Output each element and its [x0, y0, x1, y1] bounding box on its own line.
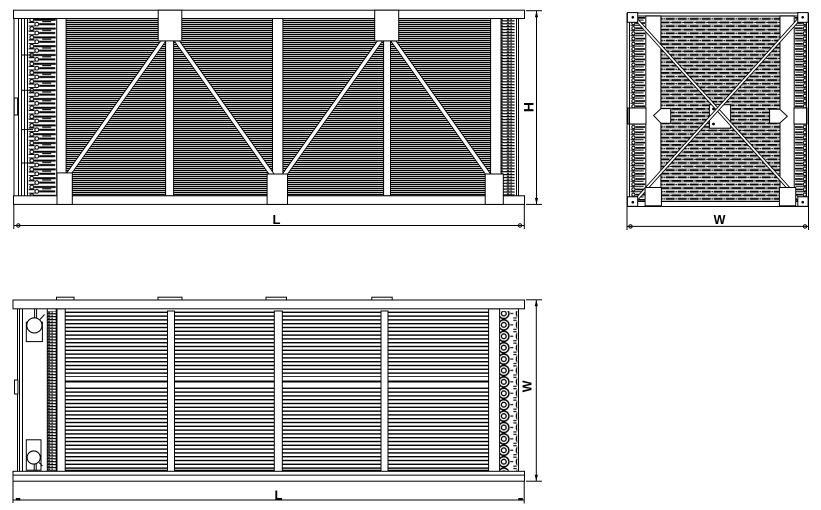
- svg-text:L: L: [273, 212, 281, 227]
- svg-text:W: W: [521, 380, 535, 392]
- svg-text:W: W: [714, 213, 726, 227]
- svg-text:L: L: [275, 488, 283, 503]
- svg-text:H: H: [521, 102, 537, 112]
